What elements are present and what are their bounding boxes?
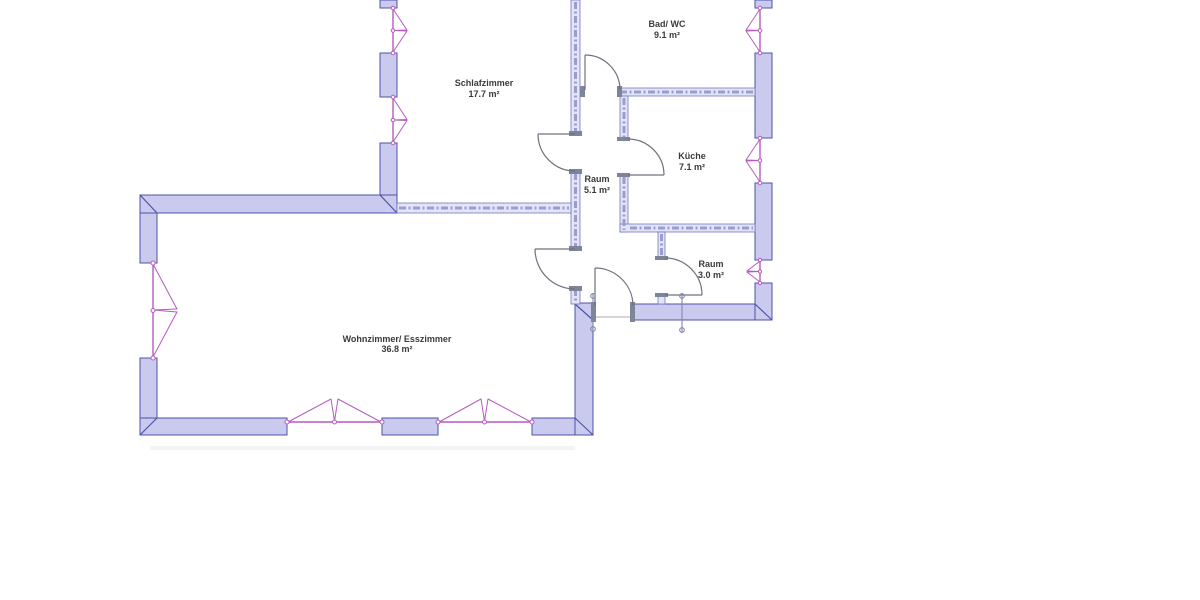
wall-right-seg2 [755,183,772,260]
room-label-raum-5-1-area: 5.1 m² [584,185,610,195]
floorplan-page: Schlafzimmer 17.7 m² Bad/ WC 9.1 m² Küch… [0,0,1200,600]
room-label-bad-wc-name: Bad/ WC [649,19,686,29]
wall-wohnzimmer-right [575,303,593,435]
room-label-kueche-name: Küche [678,151,706,161]
wall-right-seg1 [755,53,772,138]
wall-wohnzimmer-left-upper [140,213,157,263]
room-label-schlafzimmer-name: Schlafzimmer [455,78,514,88]
shadow-smudge [150,446,575,450]
room-label-wohnzimmer-area: 36.8 m² [381,344,412,354]
room-label-schlafzimmer-area: 17.7 m² [468,89,499,99]
room-label-raum-3-0-name: Raum [698,259,723,269]
room-label-wohnzimmer-name: Wohnzimmer/ Esszimmer [343,334,452,344]
wall-schlafzimmer-left-mid [380,53,397,97]
room-label-bad-wc-area: 9.1 m² [654,30,680,40]
wall-wohnzimmer-bottom-1 [140,418,287,435]
room-label-raum-3-0-area: 3.0 m² [698,270,724,280]
room-area-bad-wc [580,0,755,88]
wall-wohnzimmer-top [140,195,397,213]
wall-entry-bottom [633,304,755,320]
floorplan-drawing: Schlafzimmer 17.7 m² Bad/ WC 9.1 m² Küch… [0,0,1200,600]
wall-right-stub [755,0,772,8]
wall-right-seg3 [755,283,772,320]
wall-schlafzimmer-left-bottom [380,143,397,195]
wall-wohnzimmer-bottom-2 [382,418,438,435]
room-label-kueche-area: 7.1 m² [679,162,705,172]
room-area-wohnzimmer [157,213,575,418]
room-area-schlafzimmer [397,0,571,203]
room-label-raum-5-1-name: Raum [584,174,609,184]
